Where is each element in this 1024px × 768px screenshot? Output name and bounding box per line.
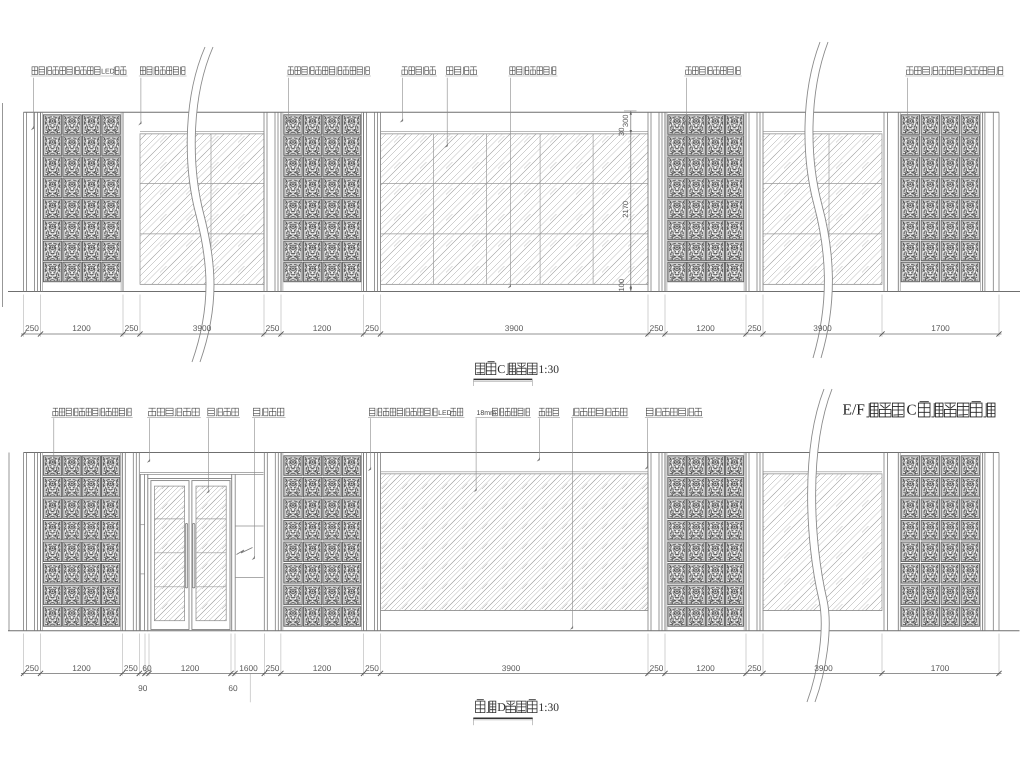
svg-text:1600: 1600 (239, 663, 258, 673)
svg-text:D: D (497, 700, 506, 714)
svg-text:60: 60 (142, 663, 152, 673)
svg-text:1200: 1200 (696, 323, 715, 333)
svg-text:1200: 1200 (72, 663, 91, 673)
svg-text:E/F: E/F (843, 402, 866, 419)
svg-text:2170: 2170 (621, 201, 630, 218)
svg-text:250: 250 (365, 663, 379, 673)
svg-text:250: 250 (650, 663, 664, 673)
svg-text:1200: 1200 (313, 663, 332, 673)
svg-text:30: 30 (617, 128, 626, 136)
svg-text:LED: LED (101, 69, 115, 76)
svg-text:C: C (907, 403, 917, 419)
svg-text:1:30: 1:30 (539, 702, 560, 714)
svg-text:250: 250 (266, 663, 280, 673)
svg-text:250: 250 (365, 323, 379, 333)
svg-text:250: 250 (748, 323, 762, 333)
svg-text:250: 250 (748, 663, 762, 673)
svg-text:250: 250 (266, 323, 280, 333)
svg-text:3900: 3900 (813, 323, 832, 333)
svg-text:1:30: 1:30 (539, 364, 560, 376)
svg-text:3900: 3900 (505, 323, 524, 333)
svg-text:1200: 1200 (696, 663, 715, 673)
svg-text:250: 250 (125, 323, 139, 333)
svg-text:250: 250 (25, 323, 39, 333)
svg-text:1200: 1200 (313, 323, 332, 333)
svg-text:3900: 3900 (502, 663, 521, 673)
svg-text:1200: 1200 (72, 323, 91, 333)
svg-text:60: 60 (228, 683, 238, 693)
svg-text:3900: 3900 (814, 663, 833, 673)
svg-text:1700: 1700 (931, 323, 950, 333)
svg-text:1700: 1700 (931, 663, 950, 673)
svg-text:250: 250 (124, 663, 138, 673)
svg-text:LED: LED (438, 410, 452, 417)
svg-text:90: 90 (138, 683, 148, 693)
svg-text:100: 100 (617, 279, 626, 292)
svg-text:3900: 3900 (193, 323, 212, 333)
svg-text:C: C (497, 362, 505, 376)
svg-text:1200: 1200 (181, 663, 200, 673)
svg-text:300: 300 (621, 114, 630, 127)
svg-text:250: 250 (25, 663, 39, 673)
svg-text:250: 250 (650, 323, 664, 333)
